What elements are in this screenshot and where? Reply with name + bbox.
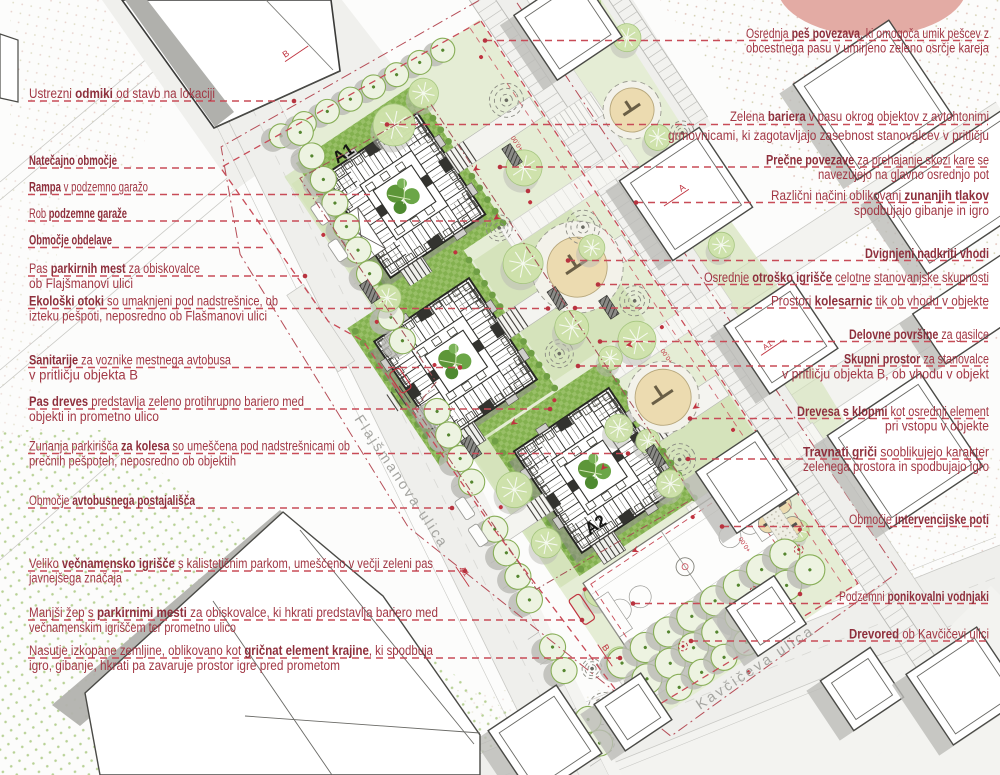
svg-text:Območje obdelave: Območje obdelave [29,233,112,248]
svg-text:Različni načini oblikovanj zun: Različni načini oblikovanj zunanjih tlak… [771,188,989,203]
svg-text:Osrednje otroško igrišče celot: Osrednje otroško igrišče celotne stanova… [704,270,989,285]
svg-text:Skupni prostor za stanovalce: Skupni prostor za stanovalce [844,352,989,367]
svg-text:Manjši žep s parkirnimi mesti: Manjši žep s parkirnimi mesti za obiskov… [29,605,438,620]
svg-text:zelenega prostora in spodbujaj: zelenega prostora in spodbujajo igro [803,459,989,474]
svg-text:Prečne povezave za prehajanje: Prečne povezave za prehajanje skozi kare… [766,153,989,168]
svg-text:Podzemni ponikovalni vodnjaki: Podzemni ponikovalni vodnjaki [839,589,989,604]
svg-text:Pas parkirnih mest za obiskova: Pas parkirnih mest za obiskovalce [29,261,200,276]
svg-text:Sanitarije za voznike mestnega: Sanitarije za voznike mestnega avtobusa [29,353,231,368]
svg-text:Območje intervencijske poti: Območje intervencijske poti [849,512,989,527]
svg-text:v pritličju objekta B: v pritličju objekta B [29,368,138,383]
svg-text:ob Flajšmanovi ulici: ob Flajšmanovi ulici [29,276,133,291]
svg-text:Dvignjeni nadkriti vhodi: Dvignjeni nadkriti vhodi [865,246,989,261]
svg-text:Drevored ob Kavčičevi ulici: Drevored ob Kavčičevi ulici [849,627,989,642]
svg-text:Ekološki otoki so umaknjeni po: Ekološki otoki so umaknjeni pod nadstreš… [29,294,278,309]
svg-text:večnamenskim igriščem ter prom: večnamenskim igriščem ter prometno ulico [29,620,236,635]
svg-text:Rampa v podzemno garažo: Rampa v podzemno garažo [29,180,148,195]
svg-text:Zelena bariera v pasu okrog ob: Zelena bariera v pasu okrog objektov z a… [730,109,989,124]
svg-text:navezujejo na glavno osrednjo: navezujejo na glavno osrednjo pot [818,167,989,182]
svg-text:grmovnicami, ki zagotavljajo z: grmovnicami, ki zagotavljajo zasebnost s… [668,128,989,143]
svg-text:Natečajno območje: Natečajno območje [29,153,117,168]
svg-text:Delovne površine za gasilce: Delovne površine za gasilce [849,327,989,342]
svg-text:prečnih pešpoteh, neposredno o: prečnih pešpoteh, neposredno ob objektih [29,454,236,469]
svg-text:Območje avtobusnega postajališ: Območje avtobusnega postajališča [29,493,195,508]
svg-text:objekti in prometno ulico: objekti in prometno ulico [29,409,159,424]
svg-text:Drevesa s klopmi kot osrednji: Drevesa s klopmi kot osrednji element [797,404,989,419]
svg-text:javnejšega značaja: javnejšega značaja [28,571,122,586]
svg-text:Travnati griči sooblikujejo ka: Travnati griči sooblikujejo karakter [803,445,989,460]
svg-text:Rob podzemne garaže: Rob podzemne garaže [29,206,127,221]
svg-text:Ustrezni odmiki od stavb na lo: Ustrezni odmiki od stavb na lokaciji [29,86,215,101]
svg-text:spodbujajo gibanje in igro: spodbujajo gibanje in igro [854,203,989,218]
svg-text:Prostori kolesarnic tik ob vho: Prostori kolesarnic tik ob vhodu v objek… [771,294,989,309]
svg-text:Zunanja parkirišča za kolesa s: Zunanja parkirišča za kolesa so umeščena… [29,439,350,454]
svg-text:v pritličju objekta B, ob vhod: v pritličju objekta B, ob vhodu v objekt [782,367,989,382]
svg-text:Nasutje izkopane zemljine, obl: Nasutje izkopane zemljine, oblikovano ko… [29,643,433,658]
svg-text:Pas dreves predstavlja zeleno: Pas dreves predstavlja zeleno protihrupn… [29,394,304,409]
svg-text:obcestnega pasu v umirjeno zel: obcestnega pasu v umirjeno zeleno osrčje… [746,41,989,56]
svg-text:igro, gibanje, hkrati pa zavar: igro, gibanje, hkrati pa zavaruje prosto… [29,658,340,673]
svg-text:izteku pešpoti, neposredno ob: izteku pešpoti, neposredno ob Flašmanovi… [29,309,267,324]
svg-text:Osrednja peš povezava, ki omog: Osrednja peš povezava, ki omogoča umik p… [746,26,989,41]
svg-text:pri vstopu v objekte: pri vstopu v objekte [885,419,989,434]
svg-text:Veliko večnamensko igrišče s k: Veliko večnamensko igrišče s kalistetičn… [29,556,433,571]
